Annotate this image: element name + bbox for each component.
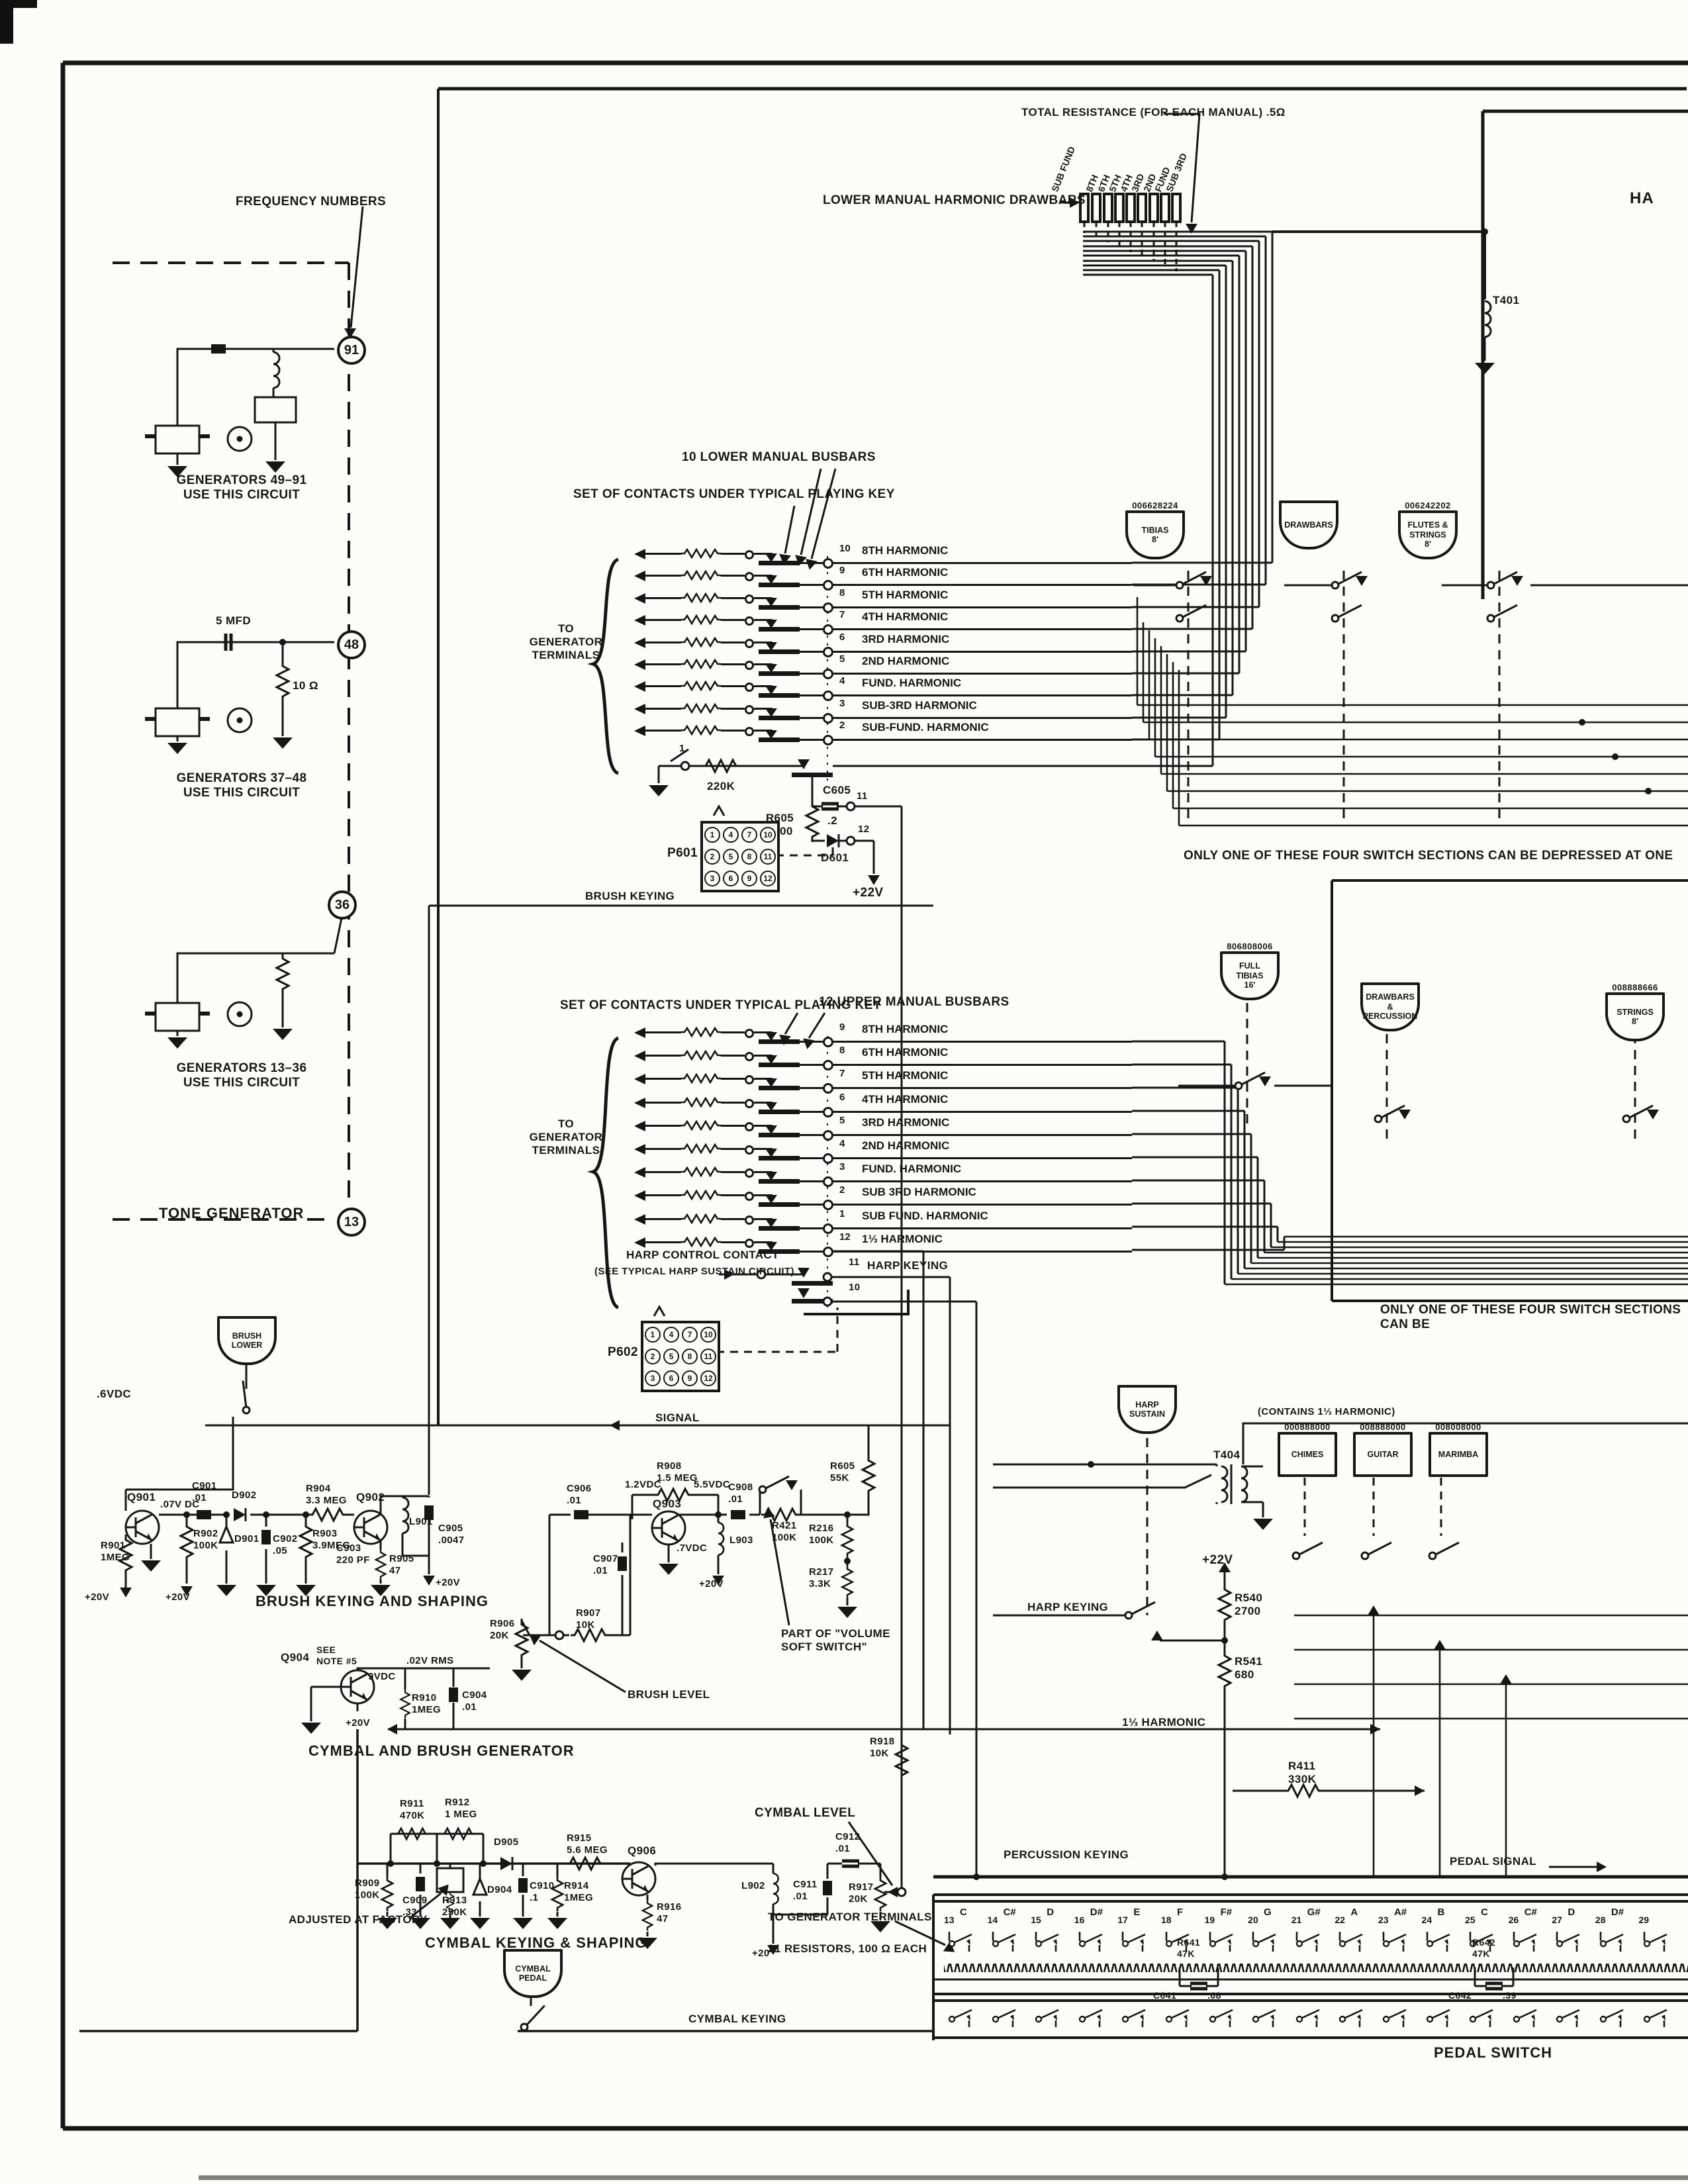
pedal-key-switch bbox=[1290, 2003, 1334, 2030]
signal-label: SIGNAL bbox=[655, 1411, 700, 1425]
switch-contact-icon bbox=[947, 1930, 978, 1953]
d601-label: D601 bbox=[821, 851, 849, 865]
c910-label: C910 .1 bbox=[530, 1880, 554, 1903]
percussion-tab: 008888000 GUITAR bbox=[1353, 1422, 1413, 1477]
r906-label: R906 20K bbox=[490, 1618, 514, 1641]
adjusted-at-factory-label: ADJUSTED AT FACTORY bbox=[289, 1913, 428, 1926]
connector-pin: 12 bbox=[700, 1370, 716, 1386]
l903-label: L903 bbox=[729, 1535, 753, 1546]
key-contact-row: 6 4TH HARMONIC bbox=[629, 1096, 1132, 1119]
switch-contact-icon bbox=[1511, 1930, 1543, 1953]
p602-label: P602 bbox=[608, 1345, 638, 1360]
resistor-icon bbox=[681, 1143, 721, 1154]
busbar-wire bbox=[800, 606, 1132, 608]
contact-point-icon bbox=[745, 572, 754, 581]
connector-pin: 7 bbox=[682, 1327, 698, 1343]
pedal-number: 27 bbox=[1552, 1915, 1562, 1925]
scan-edge-artifact bbox=[0, 0, 37, 8]
pedal-key-switch: 28 D# bbox=[1594, 1905, 1638, 1958]
pedal-key-switch: 15 D bbox=[1029, 1905, 1073, 1958]
busbar-wire bbox=[800, 1157, 1132, 1159]
plus-20-label: +20 bbox=[752, 1948, 770, 1960]
key-contact-row: 6 3RD HARMONIC bbox=[629, 636, 1132, 657]
resistor-icon bbox=[681, 1050, 721, 1061]
c605-value: .2 bbox=[827, 814, 837, 828]
volume-soft-switch-note: PART OF "VOLUME SOFT SWITCH" bbox=[781, 1627, 890, 1654]
stop-tab: DRAWBARS & PERCUSSION bbox=[1360, 982, 1420, 1031]
key-contact-row: 3 SUB-3RD HARMONIC bbox=[629, 702, 1132, 724]
busbar bbox=[759, 605, 800, 610]
terminal-icon bbox=[823, 1223, 833, 1234]
busbar bbox=[759, 1086, 800, 1090]
pedal-key-switch bbox=[1550, 2003, 1594, 2030]
connector-pin: 6 bbox=[663, 1370, 679, 1386]
resistor-icon bbox=[681, 1213, 721, 1224]
p601-connector: 147102581136912 bbox=[700, 821, 780, 892]
wire bbox=[721, 685, 745, 687]
harp-control-contact-label: HARP CONTROL CONTACT bbox=[626, 1249, 779, 1262]
terminal-number: 9 bbox=[839, 1021, 845, 1033]
wire bbox=[639, 1241, 681, 1243]
harmonic-label: FUND. HARMONIC bbox=[862, 1163, 961, 1176]
terminal-icon bbox=[823, 1037, 833, 1047]
pedal-number: 21 bbox=[1291, 1915, 1302, 1925]
busbar bbox=[759, 583, 800, 587]
wire bbox=[639, 641, 681, 643]
connector-pin: 3 bbox=[645, 1370, 661, 1386]
stop-tab: 006242202 FLUTES & STRINGS 8' bbox=[1398, 500, 1458, 559]
stop-tab: 806808006 FULL TIBIAS 16' bbox=[1220, 941, 1280, 1000]
dc-12v-label: 1.2VDC bbox=[625, 1479, 661, 1491]
terminal-number: 3 bbox=[839, 698, 845, 709]
switch-contact-icon bbox=[1381, 1930, 1413, 1953]
connector-pin: 5 bbox=[723, 849, 739, 865]
generators-49-91-caption: GENERATORS 49–91 USE THIS CIRCUIT bbox=[152, 473, 331, 503]
generators-37-48-caption: GENERATORS 37–48 USE THIS CIRCUIT bbox=[152, 771, 331, 801]
key-contact-row: 7 4TH HARMONIC bbox=[629, 613, 1132, 635]
r540-label: R540 2700 bbox=[1235, 1591, 1262, 1618]
only-one-switch-note-2: ONLY ONE OF THESE FOUR SWITCH SECTIONS C… bbox=[1380, 1303, 1688, 1333]
pedal-key-switch bbox=[1116, 2003, 1160, 2030]
percussion-tab: 008008000 MARIMBA bbox=[1429, 1422, 1488, 1477]
contact-point-icon bbox=[745, 683, 754, 692]
wire bbox=[721, 708, 745, 710]
pedal-note-name: G# bbox=[1307, 1907, 1321, 1918]
harmonic-label: 2ND HARMONIC bbox=[862, 1139, 949, 1153]
pedal-note-switch-row: 13 C 14 C# bbox=[943, 1905, 1681, 1958]
busbar bbox=[759, 693, 800, 698]
terminal-icon bbox=[823, 647, 833, 657]
key-contact-row: 5 2ND HARMONIC bbox=[629, 657, 1132, 679]
harmonic-label: 3RD HARMONIC bbox=[862, 1116, 949, 1129]
harmonic-label: 3RD HARMONIC bbox=[862, 633, 949, 646]
pedal-key-switch: 20 G bbox=[1246, 1905, 1290, 1958]
key-contact-row: 2 SUB-FUND. HARMONIC bbox=[629, 724, 1132, 745]
r641-label: R641 47K bbox=[1177, 1937, 1200, 1959]
harmonic-label: 4TH HARMONIC bbox=[862, 1093, 948, 1106]
pedal-key-switch bbox=[1203, 2003, 1247, 2030]
key-contact-row: 9 8TH HARMONIC bbox=[629, 1025, 1132, 1049]
harmonic-label: 5TH HARMONIC bbox=[862, 1069, 948, 1082]
resistor-icon bbox=[681, 1073, 721, 1084]
t401-label: T401 bbox=[1493, 294, 1519, 307]
wire bbox=[639, 575, 681, 577]
switch-contact-icon bbox=[1642, 1930, 1673, 1953]
connector-pin: 6 bbox=[723, 871, 739, 886]
generators-13-36-caption: GENERATORS 13–36 USE THIS CIRCUIT bbox=[152, 1061, 331, 1091]
pedal-switch-row-2 bbox=[943, 2003, 1681, 2030]
wire bbox=[639, 1031, 681, 1033]
wire bbox=[721, 1148, 745, 1150]
switch-contact-icon bbox=[1554, 1930, 1586, 1953]
stop-tab-name: CHIMES bbox=[1278, 1432, 1337, 1477]
terminal-number: 10 bbox=[839, 543, 851, 554]
stop-tab-name: STRINGS 8' bbox=[1605, 992, 1665, 1041]
brush-level-label: BRUSH LEVEL bbox=[628, 1688, 710, 1701]
dc-55v-label: 5.5VDC bbox=[694, 1479, 730, 1491]
c902-label: C902 .05 bbox=[273, 1533, 297, 1556]
terminal-icon bbox=[823, 558, 833, 569]
switch-contact-icon bbox=[1207, 1930, 1239, 1953]
busbar bbox=[759, 1202, 800, 1207]
harmonic-label: 8TH HARMONIC bbox=[862, 544, 948, 557]
key-contact-row: 10 8TH HARMONIC bbox=[629, 547, 1132, 569]
pedal-key-switch bbox=[1160, 2003, 1203, 2030]
pedal-key-switch: 27 D bbox=[1550, 1905, 1594, 1958]
contact-point-icon bbox=[745, 1168, 754, 1178]
switch-contact-icon bbox=[1337, 2006, 1369, 2028]
terminal-icon bbox=[823, 580, 833, 591]
busbar bbox=[759, 1063, 800, 1067]
wire bbox=[639, 1078, 681, 1080]
wire bbox=[721, 597, 745, 599]
pedal-key-switch: 22 A bbox=[1333, 1905, 1377, 1958]
pedal-note-name: E bbox=[1133, 1907, 1140, 1918]
pedal-number: 28 bbox=[1595, 1915, 1606, 1925]
busbar-wire bbox=[800, 1251, 1132, 1253]
c904-label: C904 .01 bbox=[462, 1689, 487, 1713]
contact-point-icon bbox=[745, 1122, 754, 1131]
busbar-wire bbox=[800, 739, 1132, 741]
terminal-icon bbox=[823, 1107, 833, 1117]
c903-label: C903 220 PF bbox=[336, 1543, 370, 1566]
busbar-wire bbox=[800, 584, 1132, 586]
switch-contact-icon bbox=[1294, 2006, 1326, 2028]
r642-label: R642 47K bbox=[1472, 1937, 1495, 1959]
wire bbox=[721, 1125, 745, 1127]
pedal-resistor-chain bbox=[944, 1964, 1688, 1972]
harmonic-label: FUND. HARMONIC bbox=[862, 677, 961, 690]
switch-contact-icon bbox=[1425, 1930, 1456, 1953]
connector-pin: 9 bbox=[682, 1370, 698, 1386]
pedal-number: 19 bbox=[1205, 1915, 1215, 1925]
stop-tab-name: MARIMBA bbox=[1429, 1432, 1488, 1477]
r901-label: R901 1MEG bbox=[101, 1540, 130, 1563]
brush-keying-label: BRUSH KEYING bbox=[585, 890, 675, 903]
connector-pin: 11 bbox=[700, 1349, 716, 1364]
cymbal-brush-generator-caption: CYMBAL AND BRUSH GENERATOR bbox=[308, 1742, 575, 1760]
switch-contact-icon bbox=[1033, 1930, 1065, 1953]
r913-label: R913 250K bbox=[442, 1895, 467, 1918]
r541-label: R541 680 bbox=[1235, 1655, 1262, 1682]
terminal-number: 1 bbox=[839, 1208, 845, 1219]
switch-contact-icon bbox=[1207, 2006, 1239, 2028]
contact-point-icon bbox=[745, 1215, 754, 1225]
terminal-number: 5 bbox=[839, 653, 845, 665]
switch-contact-icon bbox=[1642, 2006, 1673, 2028]
pedal-key-switch bbox=[1594, 2003, 1638, 2030]
busbar bbox=[759, 671, 800, 676]
wire bbox=[721, 1194, 745, 1196]
pedal-note-name: F bbox=[1177, 1907, 1183, 1918]
connector-pin: 1 bbox=[704, 827, 720, 843]
harmonic-label: 6TH HARMONIC bbox=[862, 566, 948, 579]
terminal-icon bbox=[823, 1153, 833, 1164]
r914-label: R914 1MEG bbox=[564, 1880, 593, 1903]
terminal-number: 7 bbox=[839, 1068, 845, 1079]
terminal-number: 6 bbox=[839, 632, 845, 643]
stop-tab-code: 006242202 bbox=[1398, 500, 1458, 510]
pedal-note-name: C# bbox=[1004, 1907, 1016, 1918]
pedal-number: 17 bbox=[1117, 1915, 1128, 1925]
key-contact-row: 8 6TH HARMONIC bbox=[629, 1049, 1132, 1072]
percussion-voice-tabs: 000888000 CHIMES 008888000 GUITAR 008008… bbox=[1278, 1422, 1488, 1477]
total-resistance-label: TOTAL RESISTANCE (FOR EACH MANUAL) .5Ω bbox=[1021, 106, 1286, 119]
scan-edge-artifact bbox=[199, 2175, 1688, 2180]
switch-contact-icon bbox=[1077, 2006, 1109, 2028]
pedal-key-switch: 19 F# bbox=[1203, 1905, 1247, 1958]
plus-22v-label: +22V bbox=[853, 886, 884, 900]
wire bbox=[639, 685, 681, 687]
r908-label: R908 1.5 MEG bbox=[657, 1460, 698, 1484]
r905-label: R905 47 bbox=[389, 1553, 414, 1576]
resistor-icon bbox=[681, 1027, 721, 1037]
terminal-icon bbox=[823, 1060, 833, 1070]
pedal-key-switch bbox=[1638, 2003, 1681, 2030]
lower-drawbars-label: LOWER MANUAL HARMONIC DRAWBARS bbox=[823, 193, 1086, 208]
wire bbox=[639, 663, 681, 665]
schematic-page: TOTAL RESISTANCE (FOR EACH MANUAL) .5Ω L… bbox=[0, 0, 1688, 2184]
terminal-number: 5 bbox=[839, 1115, 845, 1126]
switch-contact-icon bbox=[990, 2006, 1022, 2028]
stop-tab-name: TIBIAS 8' bbox=[1125, 510, 1185, 559]
pedal-note-name: A bbox=[1350, 1907, 1358, 1918]
terminal-number: 2 bbox=[839, 720, 845, 731]
frequency-numbers-label: FREQUENCY NUMBERS bbox=[236, 195, 386, 209]
terminal-number: 7 bbox=[839, 609, 845, 620]
busbar-wire bbox=[800, 1087, 1132, 1089]
wire bbox=[639, 1148, 681, 1150]
connector-pin: 2 bbox=[704, 849, 720, 865]
connector-pin: 4 bbox=[663, 1327, 679, 1343]
switch-contact-icon bbox=[1033, 2006, 1065, 2028]
see-note-label: SEE NOTE #5 bbox=[316, 1644, 357, 1666]
stop-tab-code: 008008000 bbox=[1429, 1422, 1488, 1432]
terminal-10-upper-label: 10 bbox=[849, 1282, 861, 1294]
terminal-icon bbox=[823, 690, 833, 701]
stop-tab-name: BRUSH LOWER bbox=[217, 1316, 277, 1365]
busbar bbox=[759, 1179, 800, 1184]
pedal-key-switch: 26 C# bbox=[1507, 1905, 1551, 1958]
percussion-keying-label: PERCUSSION KEYING bbox=[1004, 1848, 1129, 1862]
cymbal-keying-label: CYMBAL KEYING bbox=[688, 2013, 786, 2026]
connector-pin: 2 bbox=[645, 1349, 661, 1364]
pedal-key-switch bbox=[943, 2003, 986, 2030]
switch-contact-icon bbox=[1337, 1930, 1369, 1953]
resistor-icon bbox=[681, 659, 721, 669]
terminal-number: 12 bbox=[839, 1231, 851, 1243]
lower-busbars-label: 10 LOWER MANUAL BUSBARS bbox=[682, 450, 876, 465]
r916-label: R916 47 bbox=[657, 1901, 681, 1924]
switch-contact-icon bbox=[1381, 2006, 1413, 2028]
q901-label: Q901 bbox=[127, 1491, 156, 1504]
pedal-number: 23 bbox=[1378, 1915, 1389, 1925]
lower-manual-contact-rows: 10 8TH HARMONIC 9 6TH HARMONIC bbox=[629, 547, 1132, 746]
connector-pin: 8 bbox=[741, 849, 757, 865]
resistor-icon bbox=[681, 1097, 721, 1108]
c907-label: C907 .01 bbox=[593, 1553, 618, 1576]
wire bbox=[639, 730, 681, 732]
busbar-wire bbox=[800, 1111, 1132, 1113]
pedal-switch-caption: PEDAL SWITCH bbox=[1434, 2044, 1552, 2062]
wire bbox=[639, 1102, 681, 1104]
terminal-icon bbox=[823, 1083, 833, 1094]
pedal-number: 25 bbox=[1465, 1915, 1476, 1925]
harmonic-label: 8TH HARMONIC bbox=[862, 1023, 948, 1036]
wire bbox=[639, 1171, 681, 1173]
r912-label: R912 1 MEG bbox=[445, 1797, 477, 1820]
key-contact-row: 4 FUND. HARMONIC bbox=[629, 679, 1132, 701]
busbar bbox=[759, 627, 800, 632]
rms-02v-label: .02V RMS bbox=[406, 1655, 454, 1667]
wire bbox=[721, 1055, 745, 1057]
contact-point-icon bbox=[745, 616, 754, 626]
pedal-note-name: C bbox=[960, 1907, 967, 1918]
wire bbox=[639, 553, 681, 555]
drawbar-name-list: 8TH6TH5TH4TH3RD2NDFUNDSUB 3RDSUB FUND bbox=[1059, 123, 1231, 193]
switch-contact-icon bbox=[1598, 1930, 1630, 1953]
pedal-number: 18 bbox=[1161, 1915, 1172, 1925]
wire bbox=[639, 619, 681, 621]
r911-label: R911 470K bbox=[400, 1798, 424, 1821]
l901-label: L901 bbox=[409, 1516, 433, 1528]
upper-busbars-label: 12 UPPER MANUAL BUSBARS bbox=[819, 995, 1009, 1010]
connector-pin: 3 bbox=[704, 871, 720, 886]
pedal-key-switch bbox=[1073, 2003, 1117, 2030]
to-generator-terminals-pedal-label: TO GENERATOR TERMINALS bbox=[768, 1911, 932, 1924]
busbar bbox=[759, 649, 800, 654]
stop-tab-code: 008888000 bbox=[1353, 1422, 1413, 1432]
busbar bbox=[759, 1226, 800, 1231]
pedal-signal-label: PEDAL SIGNAL bbox=[1450, 1855, 1536, 1868]
stop-tab-name: DRAWBARS & PERCUSSION bbox=[1360, 982, 1420, 1031]
frequency-number-13: 13 bbox=[337, 1208, 366, 1237]
brush-keying-shaping-caption: BRUSH KEYING AND SHAPING bbox=[256, 1593, 489, 1610]
terminal-1-label: 1 bbox=[679, 743, 685, 755]
pedal-note-name: A# bbox=[1394, 1907, 1407, 1918]
busbar bbox=[759, 1110, 800, 1114]
to-generator-terminals-label: TO GENERATOR TERMINALS bbox=[523, 1117, 609, 1157]
key-contact-row: 3 FUND. HARMONIC bbox=[629, 1165, 1132, 1188]
r217-label: R217 3.3K bbox=[809, 1566, 833, 1590]
connector-pin: 12 bbox=[760, 871, 776, 886]
terminal-icon bbox=[823, 624, 833, 635]
c908-label: C908 .01 bbox=[728, 1482, 753, 1505]
pedal-key-switch bbox=[1464, 2003, 1507, 2030]
key-contact-row: 2 SUB 3RD HARMONIC bbox=[629, 1188, 1132, 1211]
busbar bbox=[759, 1156, 800, 1161]
pedal-key-switch: 17 E bbox=[1116, 1905, 1160, 1958]
pedal-note-name: D bbox=[1047, 1907, 1054, 1918]
resistor-icon bbox=[681, 1237, 721, 1247]
harmonic-label: 2ND HARMONIC bbox=[862, 655, 949, 668]
busbar-wire bbox=[800, 651, 1132, 653]
connector-pin: 10 bbox=[760, 827, 776, 843]
busbar-wire bbox=[800, 673, 1132, 675]
c912-label: C912 .01 bbox=[835, 1831, 860, 1854]
harmonic-label: 1⅓ HARMONIC bbox=[862, 1233, 943, 1246]
p601-label: P601 bbox=[667, 846, 698, 861]
pedal-number: 15 bbox=[1031, 1915, 1041, 1925]
pedal-note-name: D# bbox=[1090, 1907, 1103, 1918]
connector-pin: 1 bbox=[645, 1327, 661, 1343]
harmonic-label: SUB-3RD HARMONIC bbox=[862, 699, 977, 712]
pedal-note-name: G bbox=[1264, 1907, 1272, 1918]
pedal-key-switch: 23 A# bbox=[1377, 1905, 1421, 1958]
resistor-icon bbox=[681, 1190, 721, 1200]
busbar bbox=[759, 737, 800, 742]
contact-point-icon bbox=[745, 1052, 754, 1061]
terminal-icon bbox=[823, 1176, 833, 1187]
contact-point-icon bbox=[745, 661, 754, 670]
connector-pin: 11 bbox=[760, 849, 776, 865]
harmonic-label: 4TH HARMONIC bbox=[862, 610, 948, 624]
wire bbox=[721, 1031, 745, 1033]
pedal-number: 14 bbox=[988, 1915, 998, 1925]
r909-label: R909 100K bbox=[355, 1877, 379, 1901]
wire bbox=[721, 1102, 745, 1104]
pedal-note-name: B bbox=[1438, 1907, 1445, 1918]
c641-label: C641 bbox=[1153, 1990, 1176, 2001]
resistor-icon bbox=[681, 614, 721, 625]
stop-tab-name: GUITAR bbox=[1353, 1432, 1413, 1477]
frequency-number-48: 48 bbox=[337, 630, 366, 659]
plus-20v-label: +20V bbox=[699, 1578, 724, 1590]
t404-label: T404 bbox=[1213, 1448, 1240, 1462]
switch-contact-icon bbox=[1120, 1930, 1152, 1953]
stop-tab-name: HARP SUSTAIN bbox=[1117, 1385, 1177, 1434]
wire bbox=[721, 663, 745, 665]
pedal-key-switch bbox=[1377, 2003, 1421, 2030]
dc-9v-label: 9VDC bbox=[368, 1671, 396, 1683]
contact-point-icon bbox=[745, 705, 754, 714]
stop-tab-name: DRAWBARS bbox=[1279, 500, 1338, 549]
percussion-tab: 000888000 CHIMES bbox=[1278, 1422, 1337, 1477]
harmonic-label: SUB-FUND. HARMONIC bbox=[862, 721, 989, 734]
busbar-wire bbox=[800, 1180, 1132, 1182]
cap-5mfd-label: 5 MFD bbox=[216, 614, 251, 628]
pedal-number: 16 bbox=[1074, 1915, 1085, 1925]
contact-point-icon bbox=[745, 1029, 754, 1038]
pedal-key-switch bbox=[986, 2003, 1030, 2030]
terminal-number: 3 bbox=[839, 1161, 845, 1172]
r918-label: R918 10K bbox=[870, 1736, 894, 1759]
busbar-wire bbox=[800, 562, 1132, 564]
wire bbox=[639, 1055, 681, 1057]
r216-label: R216 100K bbox=[809, 1523, 833, 1546]
pedal-number: 20 bbox=[1248, 1915, 1258, 1925]
stop-tab: 006628224 TIBIAS 8' bbox=[1125, 500, 1185, 559]
